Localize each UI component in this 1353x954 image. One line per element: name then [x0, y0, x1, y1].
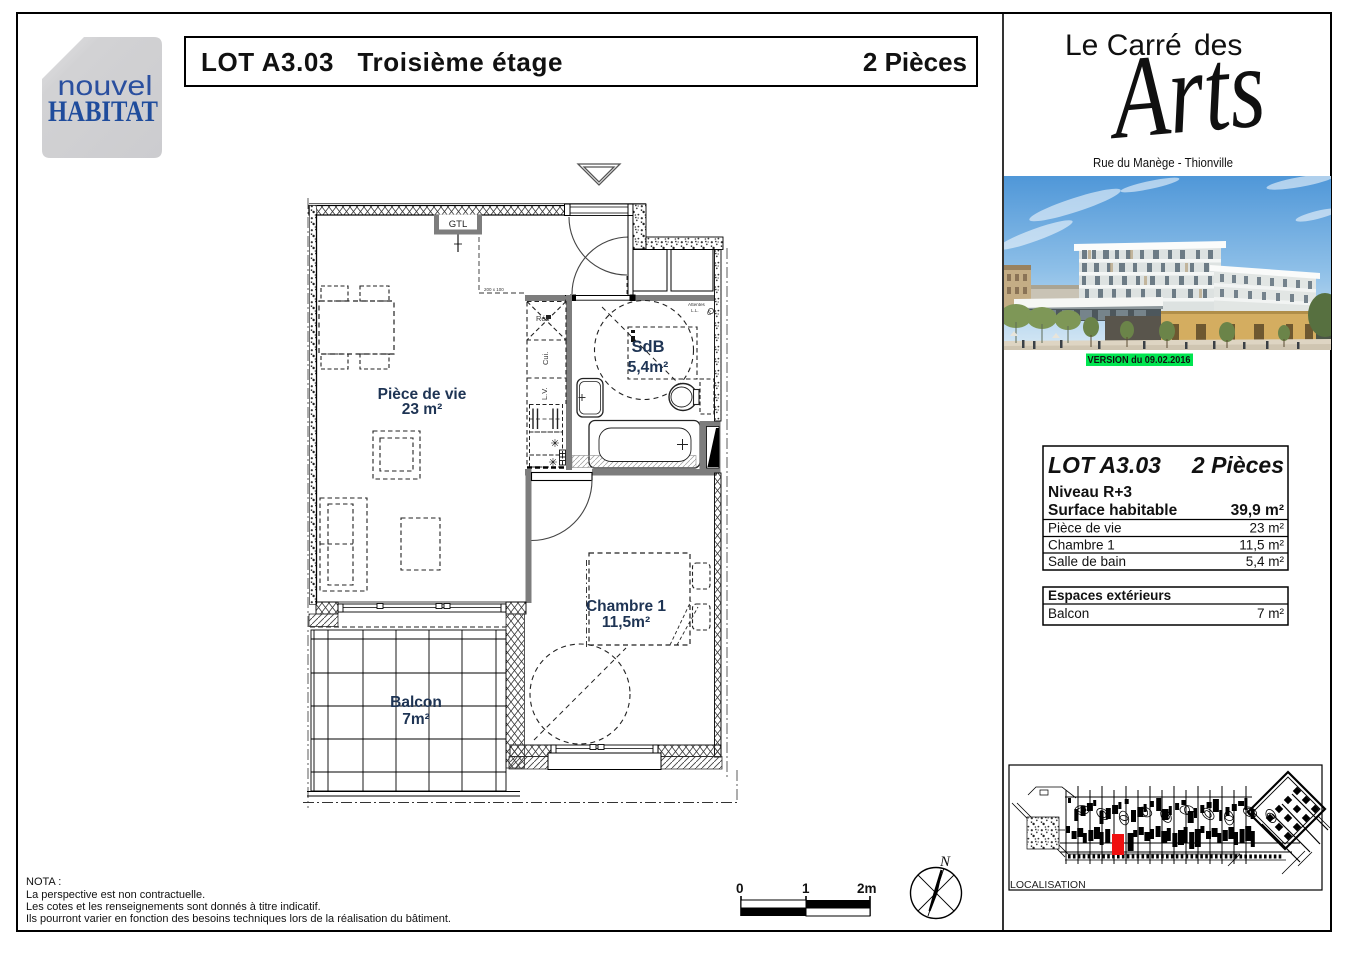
svg-text:Pièce de vie: Pièce de vie	[1048, 521, 1122, 536]
svg-text:Niveau R+3: Niveau R+3	[1048, 484, 1132, 501]
svg-text:NOTA :: NOTA :	[26, 876, 61, 888]
svg-text:7m²: 7m²	[402, 711, 430, 728]
svg-text:VERSION du 09.02.2016: VERSION du 09.02.2016	[1088, 354, 1191, 366]
svg-text:2m: 2m	[857, 881, 877, 896]
svg-text:Chambre 1: Chambre 1	[586, 598, 666, 615]
svg-text:L.L.: L.L.	[691, 308, 699, 313]
svg-text:Balcon: Balcon	[390, 694, 442, 711]
svg-text:Ils pourront varier en fonctio: Ils pourront varier en fonction des beso…	[26, 913, 451, 925]
svg-text:Espaces extérieurs: Espaces extérieurs	[1048, 588, 1171, 603]
svg-text:0: 0	[736, 881, 744, 896]
svg-text:Salle de bain: Salle de bain	[1048, 554, 1126, 569]
svg-text:Arts: Arts	[1102, 22, 1270, 164]
svg-text:Balcon: Balcon	[1048, 606, 1089, 621]
svg-text:200 x 100: 200 x 100	[484, 287, 504, 292]
svg-text:39,9 m²: 39,9 m²	[1231, 502, 1284, 519]
svg-text:Cui.: Cui.	[541, 352, 550, 365]
svg-text:2 Pièces: 2 Pièces	[863, 47, 967, 77]
svg-text:1: 1	[802, 881, 810, 896]
svg-text:11,5 m²: 11,5 m²	[1239, 538, 1284, 553]
svg-text:HABITAT: HABITAT	[48, 95, 158, 128]
svg-text:23 m²: 23 m²	[402, 401, 443, 418]
svg-text:2 Pièces: 2 Pièces	[1191, 452, 1284, 478]
svg-text:C: C	[707, 311, 712, 317]
svg-text:Chambre 1: Chambre 1	[1048, 538, 1115, 553]
svg-text:5,4 m²: 5,4 m²	[1246, 554, 1285, 569]
svg-text:GTL: GTL	[449, 219, 467, 230]
svg-text:LOT A3.03 Troisième étage: LOT A3.03 Troisième étage	[201, 47, 563, 77]
svg-text:11,5m²: 11,5m²	[602, 614, 650, 631]
svg-text:N: N	[939, 854, 951, 870]
svg-text:✳: ✳	[550, 438, 559, 450]
svg-text:LOCALISATION: LOCALISATION	[1010, 879, 1086, 891]
svg-text:Rue du Manège - Thionville: Rue du Manège - Thionville	[1093, 155, 1233, 170]
svg-text:5,4m²: 5,4m²	[628, 359, 669, 376]
svg-text:Les cotes et les renseignement: Les cotes et les renseignements sont don…	[26, 901, 321, 913]
svg-text:LOT A3.03: LOT A3.03	[1048, 452, 1161, 478]
svg-text:SdB: SdB	[632, 338, 665, 356]
svg-text:Attentes: Attentes	[688, 302, 706, 307]
svg-text:Surface habitable: Surface habitable	[1048, 502, 1178, 519]
svg-text:23 m²: 23 m²	[1249, 521, 1284, 536]
svg-text:La perspective est non contrac: La perspective est non contractuelle.	[26, 889, 205, 901]
svg-text:L.V.: L.V.	[540, 387, 549, 400]
svg-text:7 m²: 7 m²	[1257, 606, 1285, 621]
